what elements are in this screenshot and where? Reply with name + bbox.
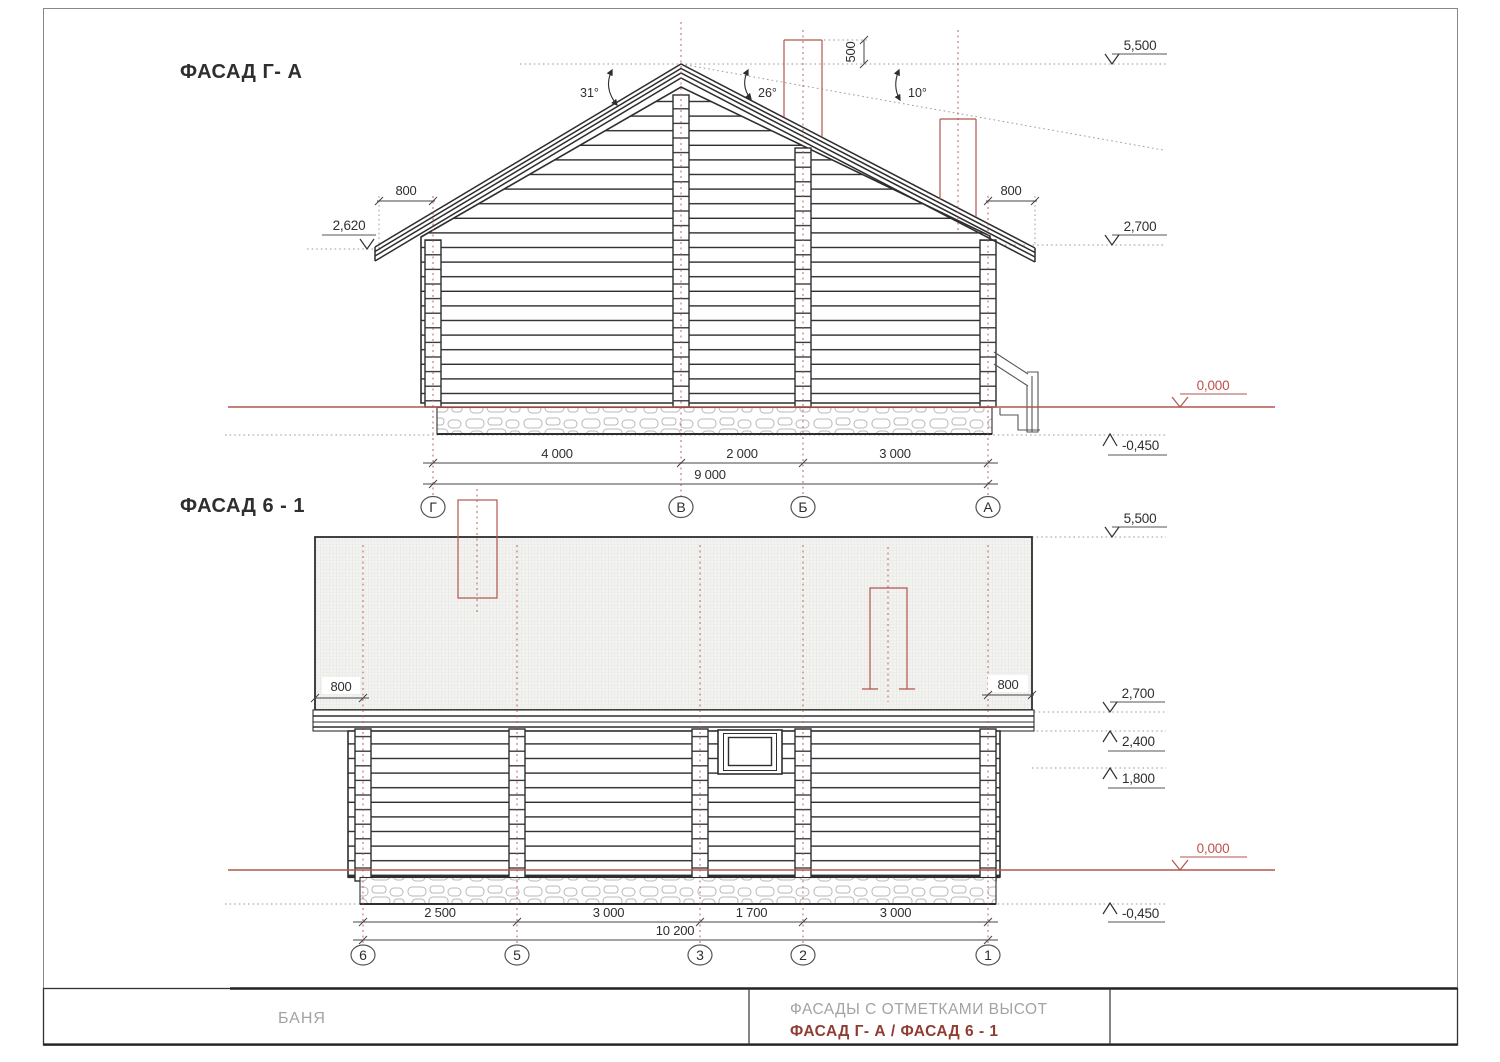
facade-61-roof xyxy=(315,537,1032,710)
dim-chimney-500: 500 xyxy=(843,41,858,62)
axis-bubble-g: Г xyxy=(429,499,437,515)
mark-5500-bottom: 5,500 xyxy=(1105,511,1167,537)
dim-span-61-4: 3 000 xyxy=(880,905,912,920)
axis-bubble-v: В xyxy=(676,499,685,515)
mark-2700-bottom: 2,700 xyxy=(1103,686,1165,712)
facade-61: ФАСАД 6 - 1 xyxy=(180,489,1275,965)
mark-2700-top: 2,700 xyxy=(1105,219,1167,245)
mark-minus450-top: -0,450 xyxy=(1103,434,1167,455)
mark-2400-bottom: 2,400 xyxy=(1103,731,1165,751)
dim-span-3: 3 000 xyxy=(879,446,911,461)
facade-ga-foundation xyxy=(437,408,992,435)
dim-overhang-left-61: 800 xyxy=(330,679,351,694)
svg-text:0,000: 0,000 xyxy=(1197,841,1230,856)
mark-zero-top: 0,000 xyxy=(1172,378,1247,407)
mark-1800-bottom: 1,800 xyxy=(1103,768,1165,788)
title-block: БАНЯ ФАСАДЫ С ОТМЕТКАМИ ВЫСОТ ФАСАД Г- А… xyxy=(44,989,1458,1046)
svg-text:1,800: 1,800 xyxy=(1122,771,1155,786)
mark-minus450-bottom: -0,450 xyxy=(1103,903,1165,922)
dim-overhang-left: 800 xyxy=(395,183,416,198)
axis-bubble-3: 3 xyxy=(696,947,704,963)
dim-span-61-1: 2 500 xyxy=(424,905,456,920)
mark-2620-left: 2,620 xyxy=(322,218,376,249)
facade-61-foundation xyxy=(360,878,996,905)
mark-5500-top: 5,500 xyxy=(1105,38,1167,64)
post-axis-v xyxy=(673,95,689,407)
dim-total: 9 000 xyxy=(694,467,726,482)
facade-ga: ФАСАД Г- А xyxy=(180,22,1275,518)
axis-bubble-a: А xyxy=(983,499,993,515)
angle-low-label: 10° xyxy=(908,86,927,100)
chimney-1-outline xyxy=(784,40,822,137)
dim-total-61: 10 200 xyxy=(656,923,695,938)
mark-zero-bottom: 0,000 xyxy=(1172,841,1247,870)
axis-bubble-b: Б xyxy=(798,499,807,515)
axis-bubble-2: 2 xyxy=(799,947,807,963)
facade-61-title: ФАСАД 6 - 1 xyxy=(180,495,305,517)
svg-text:5,500: 5,500 xyxy=(1124,38,1157,53)
svg-text:2,700: 2,700 xyxy=(1124,219,1157,234)
svg-text:2,700: 2,700 xyxy=(1122,686,1155,701)
angle-left-label: 31° xyxy=(580,86,599,100)
facade-61-axis-bubbles: 6 5 3 2 1 xyxy=(351,945,1000,965)
axis-bubble-5: 5 xyxy=(513,947,521,963)
facade-drawing: ФАСАД Г- А xyxy=(0,0,1500,1062)
svg-text:-0,450: -0,450 xyxy=(1122,438,1159,453)
svg-text:5,500: 5,500 xyxy=(1124,511,1157,526)
angle-right-label: 26° xyxy=(758,86,777,100)
svg-text:2,400: 2,400 xyxy=(1122,734,1155,749)
dim-overhang-right-61: 800 xyxy=(997,677,1018,692)
facade-61-window xyxy=(718,730,782,774)
porch-step-detail xyxy=(994,352,1040,432)
title-block-object: БАНЯ xyxy=(278,1010,326,1027)
dim-span-61-2: 3 000 xyxy=(593,905,625,920)
dim-overhang-right: 800 xyxy=(1000,183,1021,198)
title-block-sheet-title: ФАСАДЫ С ОТМЕТКАМИ ВЫСОТ xyxy=(790,1001,1048,1018)
facade-61-wall xyxy=(348,731,1000,877)
dim-span-1: 4 000 xyxy=(541,446,573,461)
dim-span-2: 2 000 xyxy=(726,446,758,461)
svg-text:2,620: 2,620 xyxy=(333,218,366,233)
svg-text:0,000: 0,000 xyxy=(1197,378,1230,393)
dim-span-61-3: 1 700 xyxy=(736,905,768,920)
facade-ga-angles: 31° 26° 10° xyxy=(580,70,927,105)
facade-61-eave-band xyxy=(313,710,1034,731)
facade-ga-wall xyxy=(421,87,990,403)
facade-ga-title: ФАСАД Г- А xyxy=(180,61,302,83)
title-block-sheet-subtitle: ФАСАД Г- А / ФАСАД 6 - 1 xyxy=(790,1023,999,1040)
svg-text:-0,450: -0,450 xyxy=(1122,906,1159,921)
axis-bubble-1: 1 xyxy=(984,947,992,963)
drawing-sheet: ФАСАД Г- А xyxy=(0,0,1500,1062)
facade-ga-axis-bubbles: Г В Б А xyxy=(421,497,1000,518)
axis-bubble-6: 6 xyxy=(359,947,367,963)
facade-61-marks: 5,500 2,700 2,400 1,800 0,000 xyxy=(1103,511,1247,922)
